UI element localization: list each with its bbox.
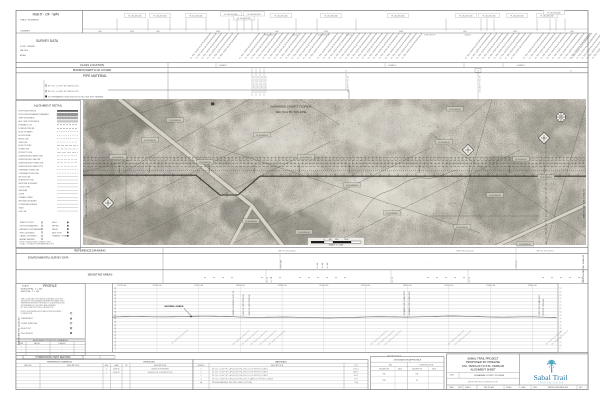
svg-text:SHEET:: SHEET: [465,387,471,389]
svg-text:40: 40 [560,325,562,327]
svg-text:1: 1 [586,387,587,389]
svg-text:FL-SU-090.000: FL-SU-090.000 [541,16,554,18]
svg-text:N 89°01'10" E: N 89°01'10" E [318,35,330,37]
svg-text:PIPELINE: PIPELINE [516,260,518,269]
svg-text:441 OF 465: 441 OF 465 [484,387,494,389]
svg-text:SURVEY DATA: SURVEY DATA [36,39,59,43]
svg-text:FL-SU-090.00: FL-SU-090.00 [169,120,180,122]
svg-text:OTHER STATIONS: OTHER STATIONS [21,322,38,325]
svg-text:36" O.D. x 0.537" W.T., API-5L: 36" O.D. x 0.537" W.T., API-5L-X70, PSL-… [212,374,269,377]
svg-text:FL-SU-090.000: FL-SU-090.000 [483,16,496,18]
svg-text:152XX+XX: 152XX+XX [469,164,471,173]
svg-text:15230+00: 15230+00 [236,285,246,287]
svg-text:36" O.D. x 0.537" W.T. API-5L-: 36" O.D. x 0.537" W.T. API-5L-X70 [48,84,80,87]
svg-text:TOTAL # OF EACH ROW MARKER IS: TOTAL # OF EACH ROW MARKER IS SH. [20,243,55,246]
svg-text:ASPHALT ROW MARKER: ASPHALT ROW MARKER [20,228,43,231]
svg-text:60: 60 [114,311,116,313]
svg-text:512.11': 512.11' [346,35,352,37]
svg-text:ISSUED FOR CONSTRUCTION: ISSUED FOR CONSTRUCTION [148,372,173,374]
svg-text:FL-SU-090.000: FL-SU-090.000 [154,16,167,18]
svg-text:REV:: REV: [579,387,583,389]
svg-text:UNNAMED DIRT ROAD XING: UNNAMED DIRT ROAD XING [403,291,406,316]
svg-text:30: 30 [114,332,116,334]
svg-text:MILE POST: MILE POST [52,232,63,234]
svg-text:DESIGNATIONS APPROVALS: DESIGNATIONS APPROVALS [394,359,422,362]
svg-text:SMT-PL-XXX-00161-441: SMT-PL-XXX-00161-441 [548,387,568,389]
svg-text:DIRT ROW MARKER: DIRT ROW MARKER [20,225,39,228]
svg-text:05/08/15: 05/08/15 [113,369,120,371]
svg-text:55: 55 [114,315,116,317]
svg-text:PIPE MATERIAL: PIPE MATERIAL [83,74,107,78]
svg-text:50: 50 [114,318,116,320]
svg-text:660: 660 [98,31,101,33]
svg-text:25: 25 [114,335,116,337]
svg-text:ACCESS ROAD: ACCESS ROAD [19,134,32,137]
svg-text:FL-SU-090.00: FL-SU-090.00 [256,135,267,137]
svg-text:DESCRIPTION: DESCRIPTION [412,368,422,370]
svg-text:1320: 1320 [324,31,328,33]
svg-text:264.9': 264.9' [354,375,359,377]
svg-text:DESCRIPTION: DESCRIPTION [379,368,389,370]
svg-text:1: 1 [201,368,202,370]
svg-text:USE - N/A: USE - N/A [19,210,28,213]
svg-text:15265+00: 15265+00 [528,285,538,287]
svg-text:SECTION LINE: SECTION LINE [19,176,32,178]
svg-text:80: 80 [560,298,562,300]
svg-text:FL-SU-090.00: FL-SU-090.00 [298,232,309,234]
svg-text:OWNERS: OWNERS [20,31,30,33]
svg-text:FL-SU-090.000: FL-SU-090.000 [511,16,524,18]
svg-text:STA. 15215+00 TO STA. 15268+00: STA. 15215+00 TO STA. 15268+00 [462,364,505,368]
svg-text:PROPOSED 36" PIPELINE: PROPOSED 36" PIPELINE [466,360,500,364]
svg-text:MINIMUM DEPTH OF COVER: MINIMUM DEPTH OF COVER [73,68,111,72]
svg-text:2640: 2640 [399,31,403,33]
svg-text:TREES/FIELD: TREES/FIELD [21,318,34,320]
svg-text:LEVEE: LEVEE [19,194,25,196]
svg-text:VALVE: VALVE [52,228,59,231]
svg-text:ADD. TEMP WORKSPACE: ADD. TEMP WORKSPACE [19,120,40,123]
svg-text:UNDERGROUND WATER LINE: UNDERGROUND WATER LINE [19,155,44,158]
svg-text:152XX+XX: 152XX+XX [544,164,546,173]
svg-text:09/04/15: 09/04/15 [113,372,120,374]
svg-text:95: 95 [114,288,116,290]
svg-text:SENSITIVE AREAS: SENSITIVE AREAS [88,272,113,276]
svg-text:USID:: USID: [450,375,455,377]
svg-text:FL-SU-090.00: FL-SU-090.00 [300,157,311,159]
svg-text:15: 15 [560,342,562,344]
svg-text:ALIGNMENT SHEET: ALIGNMENT SHEET [470,368,496,372]
svg-text:SEE DWG 16215-00: SEE DWG 16215-00 [456,250,473,252]
svg-text:36" O.D. x 0.537" W.T.: 36" O.D. x 0.537" W.T. [264,76,266,93]
svg-text:WELL: WELL [52,222,57,224]
svg-text:REFERENCE DRAWING: REFERENCE DRAWING [74,249,105,253]
svg-text:15225+00: 15225+00 [194,285,204,287]
svg-text:CONSTRUCTION: CONSTRUCTION [419,364,434,366]
svg-text:FL-SU-090.00: FL-SU-090.00 [346,185,357,187]
svg-text:FL-SU-090.000: FL-SU-090.000 [190,16,203,18]
svg-text:SEC (34 & 35) T2S R15E: SEC (34 & 35) T2S R15E [276,110,307,114]
svg-text:36" O.D. x 0.690" W.T.: 36" O.D. x 0.690" W.T. [478,76,480,93]
svg-text:36" O.D. x 0.690" W.T., API-5L: 36" O.D. x 0.690" W.T., API-5L-X70, PSL-… [212,378,274,381]
svg-text:REFERENCE DRAWINGS: REFERENCE DRAWINGS [47,360,72,363]
svg-text:15245+00: 15245+00 [361,285,371,287]
svg-text:FOREIGN PIPELINE: FOREIGN PIPELINE [19,128,36,130]
svg-text:15260+00: 15260+00 [486,285,496,287]
svg-text:DESIGN: DESIGN [59,343,67,345]
svg-text:WL-AA: WL-AA [321,262,324,268]
svg-text:FL-SU-090.00: FL-SU-090.00 [515,159,526,161]
svg-text:MILE POST: MILE POST [21,328,32,330]
svg-text:WL-3X: WL-3X [469,276,471,282]
svg-text:152XX+XX: 152XX+XX [349,164,351,173]
svg-text:1320: 1320 [130,31,134,33]
svg-text:PROP 36" PIPELINE: PROP 36" PIPELINE [543,298,545,316]
svg-text:85: 85 [114,295,116,297]
svg-text:POINT OWNER: POINT OWNER [20,46,35,48]
svg-text:5: 5 [114,348,115,350]
svg-text:TRACT: TRACT [19,206,25,209]
svg-text:85: 85 [560,295,562,297]
svg-text:SMT-PL-XXX-00160: SMT-PL-XXX-00160 [278,250,295,252]
svg-text:WL-3X: WL-3X [267,276,269,282]
svg-text:. . . . .: . . . . . [427,262,433,264]
svg-text:660: 660 [156,31,159,33]
svg-text:SMT-PL-XXX-00161: SMT-PL-XXX-00161 [536,250,553,252]
svg-text:TEMP WORKSPACE: TEMP WORKSPACE [19,117,36,120]
svg-text:PROPOSED PERMANENT EASEMENT: PROPOSED PERMANENT EASEMENT [19,113,49,116]
svg-text:15: 15 [114,342,116,344]
svg-text:T R A N S M I S S I O N: T R A N S M I S S I O N [538,381,563,384]
svg-text:FL-SU-090.000: FL-SU-090.000 [275,16,288,18]
svg-text:CLASS 1: CLASS 1 [219,64,228,67]
svg-text:PROPOSED PIPELINE: PROPOSED PIPELINE [19,111,38,113]
svg-text:EDGE OF WATER: EDGE OF WATER [19,130,34,133]
svg-text:CLASS 1: CLASS 1 [388,64,397,67]
svg-text:APPROVED FOR CONSTRUCTION: APPROVED FOR CONSTRUCTION [468,380,498,383]
svg-text:CONSERVATION AREA: CONSERVATION AREA [19,203,38,206]
svg-text:90: 90 [560,291,562,293]
svg-text:AERIAL MARKER: AERIAL MARKER [20,238,36,241]
svg-text:UNNAMED DIRT ROAD XING: UNNAMED DIRT ROAD XING [408,291,411,316]
svg-text:40: 40 [114,325,116,327]
svg-text:FL-SU-090.00: FL-SU-090.00 [449,109,460,111]
svg-text:152XX+XX: 152XX+XX [209,164,211,173]
svg-text:HORIZONTAL: 1" = 600': HORIZONTAL: 1" = 600' [21,288,43,291]
svg-text:65: 65 [114,308,116,310]
svg-text:35: 35 [560,328,562,330]
svg-text:VALUE: VALUE [34,342,41,345]
svg-text:ISSUED FOR REVIEW: ISSUED FOR REVIEW [151,369,169,371]
svg-text:RAILROAD: RAILROAD [19,189,28,192]
svg-text:15235+00: 15235+00 [278,285,288,287]
svg-text:152XX+XX: 152XX+XX [119,164,121,173]
svg-text:FL-SU-090.000: FL-SU-090.000 [129,16,142,18]
svg-text:15255+00: 15255+00 [444,285,454,287]
svg-text:N 88°12'44" E: N 88°12'44" E [264,35,276,37]
svg-text:10: 10 [560,345,562,347]
svg-text:152XX+XX: 152XX+XX [149,164,151,173]
svg-text:ALIGN SHEET / PRODUCTS CLEARAN: ALIGN SHEET / PRODUCTS CLEARANCE [33,339,69,342]
svg-text:SUWANNEE COUNTY FLORIDA: SUWANNEE COUNTY FLORIDA [474,374,504,377]
svg-text:POWER LINE: POWER LINE [19,149,30,151]
svg-text:2: 2 [201,372,202,374]
svg-text:UNDERGROUND FIBER OPTIC: UNDERGROUND FIBER OPTIC [19,166,44,168]
svg-text:VERTICAL: 1" = 100': VERTICAL: 1" = 100' [21,290,40,293]
svg-text:SUWANNEE COUNTY FLORIDA.: SUWANNEE COUNTY FLORIDA. [270,105,312,109]
svg-text:PIPE CROSSING: PIPE CROSSING [20,232,35,234]
svg-text:FL-SU-090.000: FL-SU-090.000 [325,16,338,18]
svg-text:20: 20 [114,338,116,340]
svg-text:3: 3 [201,375,202,377]
svg-text:15215+00: 15215+00 [117,285,127,287]
svg-text:45: 45 [560,322,562,324]
svg-text:METER: METER [52,226,59,228]
svg-text:CLASS 1: CLASS 1 [517,64,526,67]
svg-text:75: 75 [114,301,116,303]
svg-text:36" O.D. x 0.690" W.T. API-5L-: 36" O.D. x 0.690" W.T. API-5L-X70 [48,90,80,93]
svg-text:ALIGNMENT DETAIL: ALIGNMENT DETAIL [34,104,63,108]
svg-text:36" O.D. x 0.537" W.T.: 36" O.D. x 0.537" W.T. [260,76,262,93]
svg-text:152XX+XX: 152XX+XX [299,164,301,173]
svg-text:36" O.D. x 0.537" W.T., API-5L: 36" O.D. x 0.537" W.T., API-5L-X70, PSL-… [212,371,269,374]
svg-text:BY THE CONSTRUCTION CONTRACTOR: BY THE CONSTRUCTION CONTRACTOR. [21,306,54,309]
svg-text:FL-SU-090.00: FL-SU-090.00 [112,157,123,159]
svg-text:TREE LINE: TREE LINE [19,142,29,144]
svg-text:MATCH LINE STA. 15215+00: MATCH LINE STA. 15215+00 [18,317,21,345]
svg-text:80: 80 [114,298,116,300]
svg-text:70: 70 [560,305,562,307]
svg-text:FL-SU-090.00: FL-SU-090.00 [144,140,155,142]
svg-text:FL-SU-090.000: FL-SU-090.000 [392,16,405,18]
svg-text:HYDROSTATIC TEST SECTION: HYDROSTATIC TEST SECTION [36,356,71,359]
svg-text:FL-SU-090.00: FL-SU-090.00 [456,227,467,229]
svg-text:COUNTY LINE: COUNTY LINE [19,187,31,189]
svg-text:NATURAL GRADE: NATURAL GRADE [165,305,184,308]
svg-text:2017: 2017 [458,387,462,389]
svg-text:1" = 600': 1" = 600' [518,387,526,389]
svg-text:PROFILE: PROFILE [43,284,57,288]
svg-text:SCALE:: SCALE: [22,285,30,288]
svg-text:OVERHEAD TELEPHONE: OVERHEAD TELEPHONE [19,172,40,175]
svg-text:OVERHEAD POWER LINE: OVERHEAD POWER LINE [19,168,40,171]
svg-text:FL-SU-090.00: FL-SU-090.00 [386,213,397,215]
svg-text:AREA: AREA [20,54,26,57]
svg-text:VALUES: VALUES [20,49,29,52]
svg-text:FL-SU-090.000: FL-SU-090.000 [248,14,261,16]
svg-text:TRANSM. TOWER: TRANSM. TOWER [52,235,69,238]
svg-text:10: 10 [114,345,116,347]
svg-text:660: 660 [463,31,466,33]
svg-text:152XX+XX: 152XX+XX [509,164,511,173]
svg-text:36" O.D. x 0.537" W.T.: 36" O.D. x 0.537" W.T. [256,76,258,93]
svg-text:FL-SU-090.00: FL-SU-090.00 [245,221,256,223]
svg-text:HIGHWAY R.O.W.: HIGHWAY R.O.W. [19,124,33,127]
svg-text:70: 70 [114,305,116,307]
svg-text:UNDERGROUND POWER LINE: UNDERGROUND POWER LINE [19,162,44,164]
svg-text:FL-SU-090.000: FL-SU-090.000 [548,13,561,15]
svg-text:4: 4 [201,379,202,381]
svg-text:MATCH LINE STA. 15268+00: MATCH LINE STA. 15268+00 [583,188,586,218]
svg-text:CLASS LOCATION: CLASS LOCATION [80,63,104,67]
svg-text:WL-3X: WL-3X [271,276,273,282]
svg-text:EDGE OF ROAD: EDGE OF ROAD [19,144,33,147]
svg-text:36" O.D. x 0.537" W.T.: 36" O.D. x 0.537" W.T. [252,76,254,93]
svg-text:EXIST DIRT ROAD XING: EXIST DIRT ROAD XING [538,295,541,316]
svg-text:36" O.D. x 0.537" W.T., API-5L: 36" O.D. x 0.537" W.T., API-5L-X70, PSL-… [212,367,269,370]
svg-text:45: 45 [114,322,116,324]
svg-text:60: 60 [560,311,562,313]
svg-text:TRACT NUMBERS: TRACT NUMBERS [20,19,39,22]
svg-text:75: 75 [560,301,562,303]
svg-text:760.05': 760.05' [292,35,298,37]
svg-text:15220+00: 15220+00 [153,285,163,287]
svg-text:WL-AA: WL-AA [316,262,319,268]
svg-text:RIGHT - OF - WAY: RIGHT - OF - WAY [33,12,61,16]
svg-text:N 88°58'30" E: N 88°58'30" E [424,35,436,37]
svg-text:TREES / POSTS: TREES / POSTS [20,222,35,224]
svg-text:MATCH LINE STA. 15215+00: MATCH LINE STA. 15215+00 [85,188,88,218]
svg-text:UNDERGROUND GAS LINE: UNDERGROUND GAS LINE [19,158,42,161]
svg-text:GRADE CROSSING 110TH ST: GRADE CROSSING 110TH ST [232,290,235,316]
svg-text:ENVIRONMENTAL SURVEY DATA: ENVIRONMENTAL SURVEY DATA [28,256,69,260]
svg-text:SCALE:: SCALE: [506,386,513,389]
svg-text:2480.1': 2480.1' [353,372,359,374]
svg-text:PIPELINE MARKERS PER SPEC SHEE: PIPELINE MARKERS PER SPEC SHEET (TYPICAL… [212,381,253,384]
svg-text:FL-SU-090.00: FL-SU-090.00 [489,195,500,197]
svg-text:SUBDIVISION LINE: SUBDIVISION LINE [19,180,35,182]
svg-text:WETLAND BOUNDARY: WETLAND BOUNDARY [19,199,38,202]
svg-text:FL-SU-090.00: FL-SU-090.00 [519,244,530,246]
svg-text:15250+00: 15250+00 [403,285,413,287]
svg-text:2770.4': 2770.4' [353,368,359,370]
svg-text:NOT PERMANENT. DENOTED BOTTLE: NOT PERMANENT. DENOTED BOTTLE SECTION TE… [48,95,104,98]
svg-text:WL-3X: WL-3X [392,276,394,282]
svg-text:MUNICIPAL BOUNDARY: MUNICIPAL BOUNDARY [19,182,39,185]
svg-text:WL-AA: WL-AA [326,262,329,268]
svg-text:152XX+XX: 152XX+XX [254,164,256,173]
svg-text:FL-SU-090.00: FL-SU-090.00 [199,162,210,164]
svg-text:SCALE: 1" = 600': SCALE: 1" = 600' [329,243,344,246]
svg-text:YEAR:: YEAR: [449,386,455,389]
svg-text:15240+00: 15240+00 [319,285,329,287]
svg-text:55: 55 [560,315,562,317]
svg-text:EXIST 16" SMT PIPELINE: EXIST 16" SMT PIPELINE [243,294,245,316]
svg-text:MATERIALS: MATERIALS [275,360,287,363]
svg-text:0: 0 [106,369,107,371]
svg-text:2640.21': 2640.21' [465,35,472,37]
svg-text:PROCESSOR: PROCESSOR [21,333,34,335]
svg-text:STREAM / CREEK: STREAM / CREEK [19,196,34,199]
svg-text:EXIST 24" SMT PIPELINE: EXIST 24" SMT PIPELINE [249,294,251,316]
svg-text:FL-SU-090.00: FL-SU-090.00 [438,142,449,144]
svg-text:90: 90 [114,291,116,293]
svg-text:PIPELINE: PIPELINE [281,259,283,268]
svg-text:WL-3X: WL-3X [582,276,584,282]
svg-text:95: 95 [560,288,562,290]
svg-text:FENCE LINE: FENCE LINE [19,138,30,140]
svg-text:CORRECTION: CORRECTION [21,313,33,315]
svg-text:152XX+XX: 152XX+XX [419,164,421,173]
svg-text:PROPERTY LINE: PROPERTY LINE [19,152,33,154]
svg-text:2640: 2640 [216,31,220,33]
svg-text:35: 35 [114,328,116,330]
svg-text:50: 50 [560,318,562,320]
svg-text:CASED CROSSING: CASED CROSSING [20,235,38,238]
svg-text:DWG.: DWG. [533,387,538,389]
svg-text:65: 65 [560,308,562,310]
svg-text:5: 5 [560,348,561,350]
svg-text:1: 1 [106,372,107,374]
svg-text:36" O.D. x 0.537" W.T.: 36" O.D. x 0.537" W.T. [346,76,348,93]
svg-text:FL-SU-090.000: FL-SU-090.000 [460,16,473,18]
